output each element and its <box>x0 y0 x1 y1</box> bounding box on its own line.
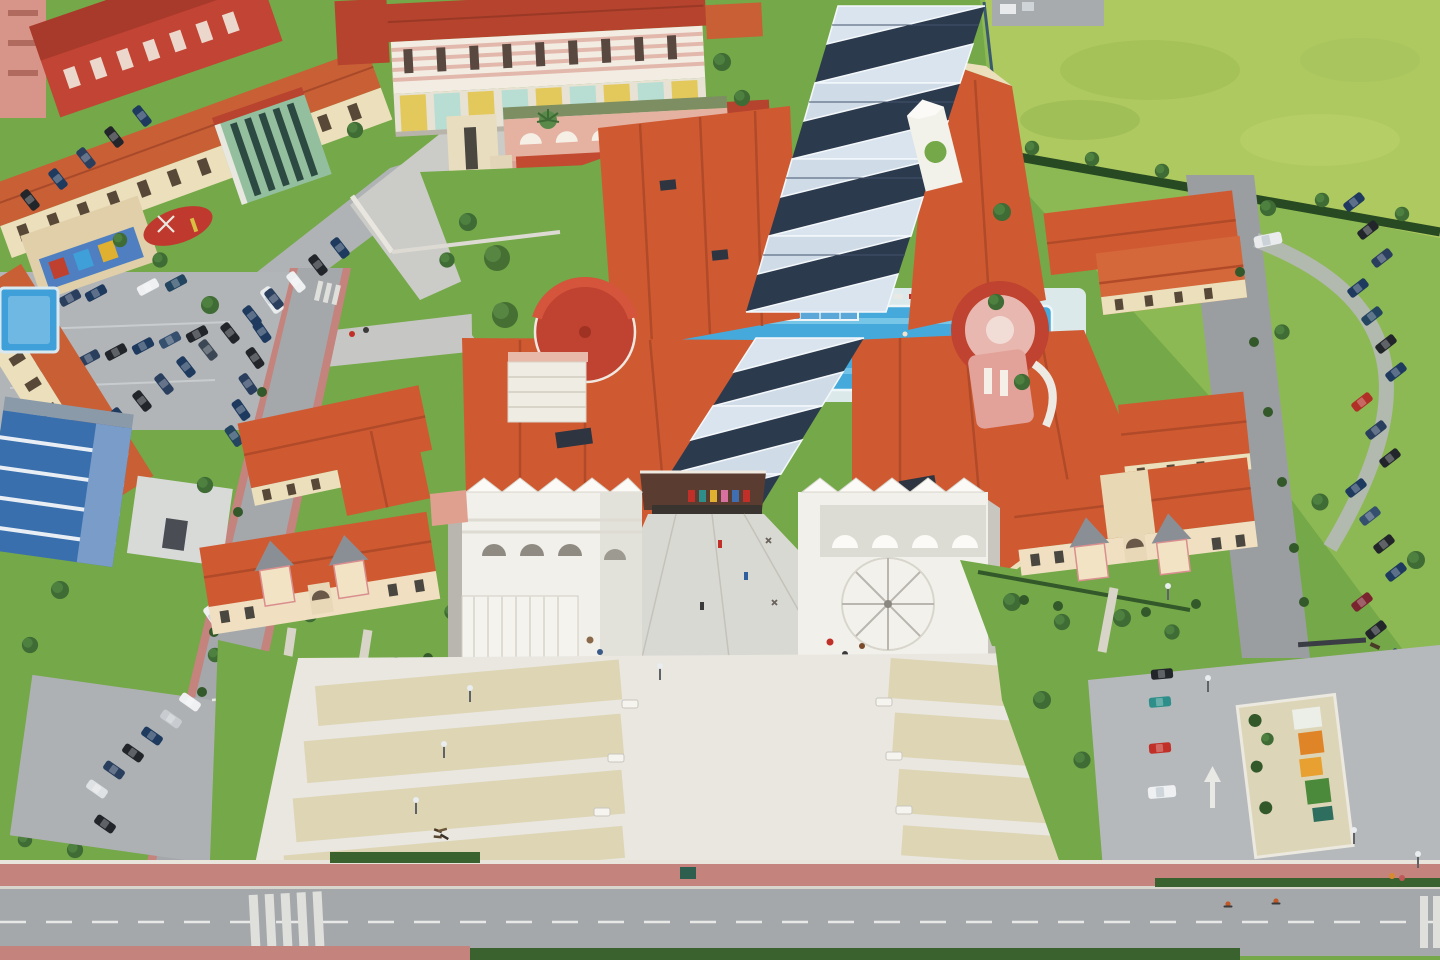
tree <box>1260 200 1276 216</box>
recycling-bin-yellow <box>1299 757 1323 778</box>
tree <box>347 122 363 138</box>
red-car <box>1149 742 1172 754</box>
tree <box>1113 609 1131 627</box>
bottom-right-parking: STOP <box>1088 645 1440 897</box>
tree <box>459 213 477 231</box>
tree <box>113 233 127 247</box>
side-roof <box>705 2 763 39</box>
tree <box>1407 551 1425 569</box>
pedestrian <box>1389 873 1395 879</box>
tree <box>1085 152 1099 166</box>
recycling-bin-orange <box>1298 730 1325 755</box>
giant-umbrella <box>842 558 934 650</box>
tree <box>197 477 213 493</box>
notice-board <box>680 867 696 879</box>
main-road <box>0 889 1440 956</box>
tree <box>1025 141 1039 155</box>
recycling-bin-white <box>1292 706 1322 729</box>
sidewalk-hedge <box>1155 878 1440 887</box>
bush <box>257 387 267 397</box>
bottom-road-zone <box>0 851 1440 960</box>
tree <box>1014 374 1030 390</box>
tree <box>484 245 510 271</box>
recycling-bin-teal <box>1312 806 1334 822</box>
tree <box>1274 324 1289 339</box>
car <box>1151 668 1174 680</box>
tree <box>1311 493 1328 510</box>
tree <box>1033 691 1051 709</box>
tree <box>993 203 1011 221</box>
recycling-bin-green <box>1305 778 1332 805</box>
bush <box>1191 599 1201 609</box>
tree <box>201 296 219 314</box>
tree <box>492 302 518 328</box>
aerial-photo-resort-village: STOP <box>0 0 1440 960</box>
tree <box>1054 614 1070 630</box>
pink-apartment-tower <box>0 0 46 118</box>
tree <box>1395 207 1409 221</box>
roadside-hedge <box>470 948 1240 960</box>
bush <box>1277 477 1287 487</box>
scene-canvas: STOP <box>0 0 1440 960</box>
bush <box>1141 607 1151 617</box>
bush <box>1289 543 1299 553</box>
bush <box>1019 595 1029 605</box>
plaza-hedge <box>330 852 480 863</box>
annex-red-roof <box>334 0 389 65</box>
tree <box>1073 751 1090 768</box>
tree <box>152 252 167 267</box>
bush <box>1299 597 1309 607</box>
tree <box>988 294 1004 310</box>
gravel-island <box>1237 695 1353 858</box>
tree <box>1155 164 1169 178</box>
tree <box>1164 624 1179 639</box>
tree <box>439 252 454 267</box>
blue-apartment-building <box>0 397 134 568</box>
tree <box>1315 193 1329 207</box>
pedestrian <box>1399 875 1405 881</box>
bush <box>1235 267 1245 277</box>
tree <box>22 637 38 653</box>
white-van <box>1148 785 1177 799</box>
tree <box>734 90 750 106</box>
bush <box>197 687 207 697</box>
bush <box>1053 601 1063 611</box>
tree <box>51 581 69 599</box>
bush <box>1249 337 1259 347</box>
bush <box>1263 407 1273 417</box>
gate-pavilion-left <box>448 478 642 668</box>
bush <box>233 507 243 517</box>
entrance-gable <box>640 472 766 515</box>
tree <box>1003 593 1021 611</box>
teal-car <box>1149 696 1172 708</box>
tree <box>713 53 731 71</box>
